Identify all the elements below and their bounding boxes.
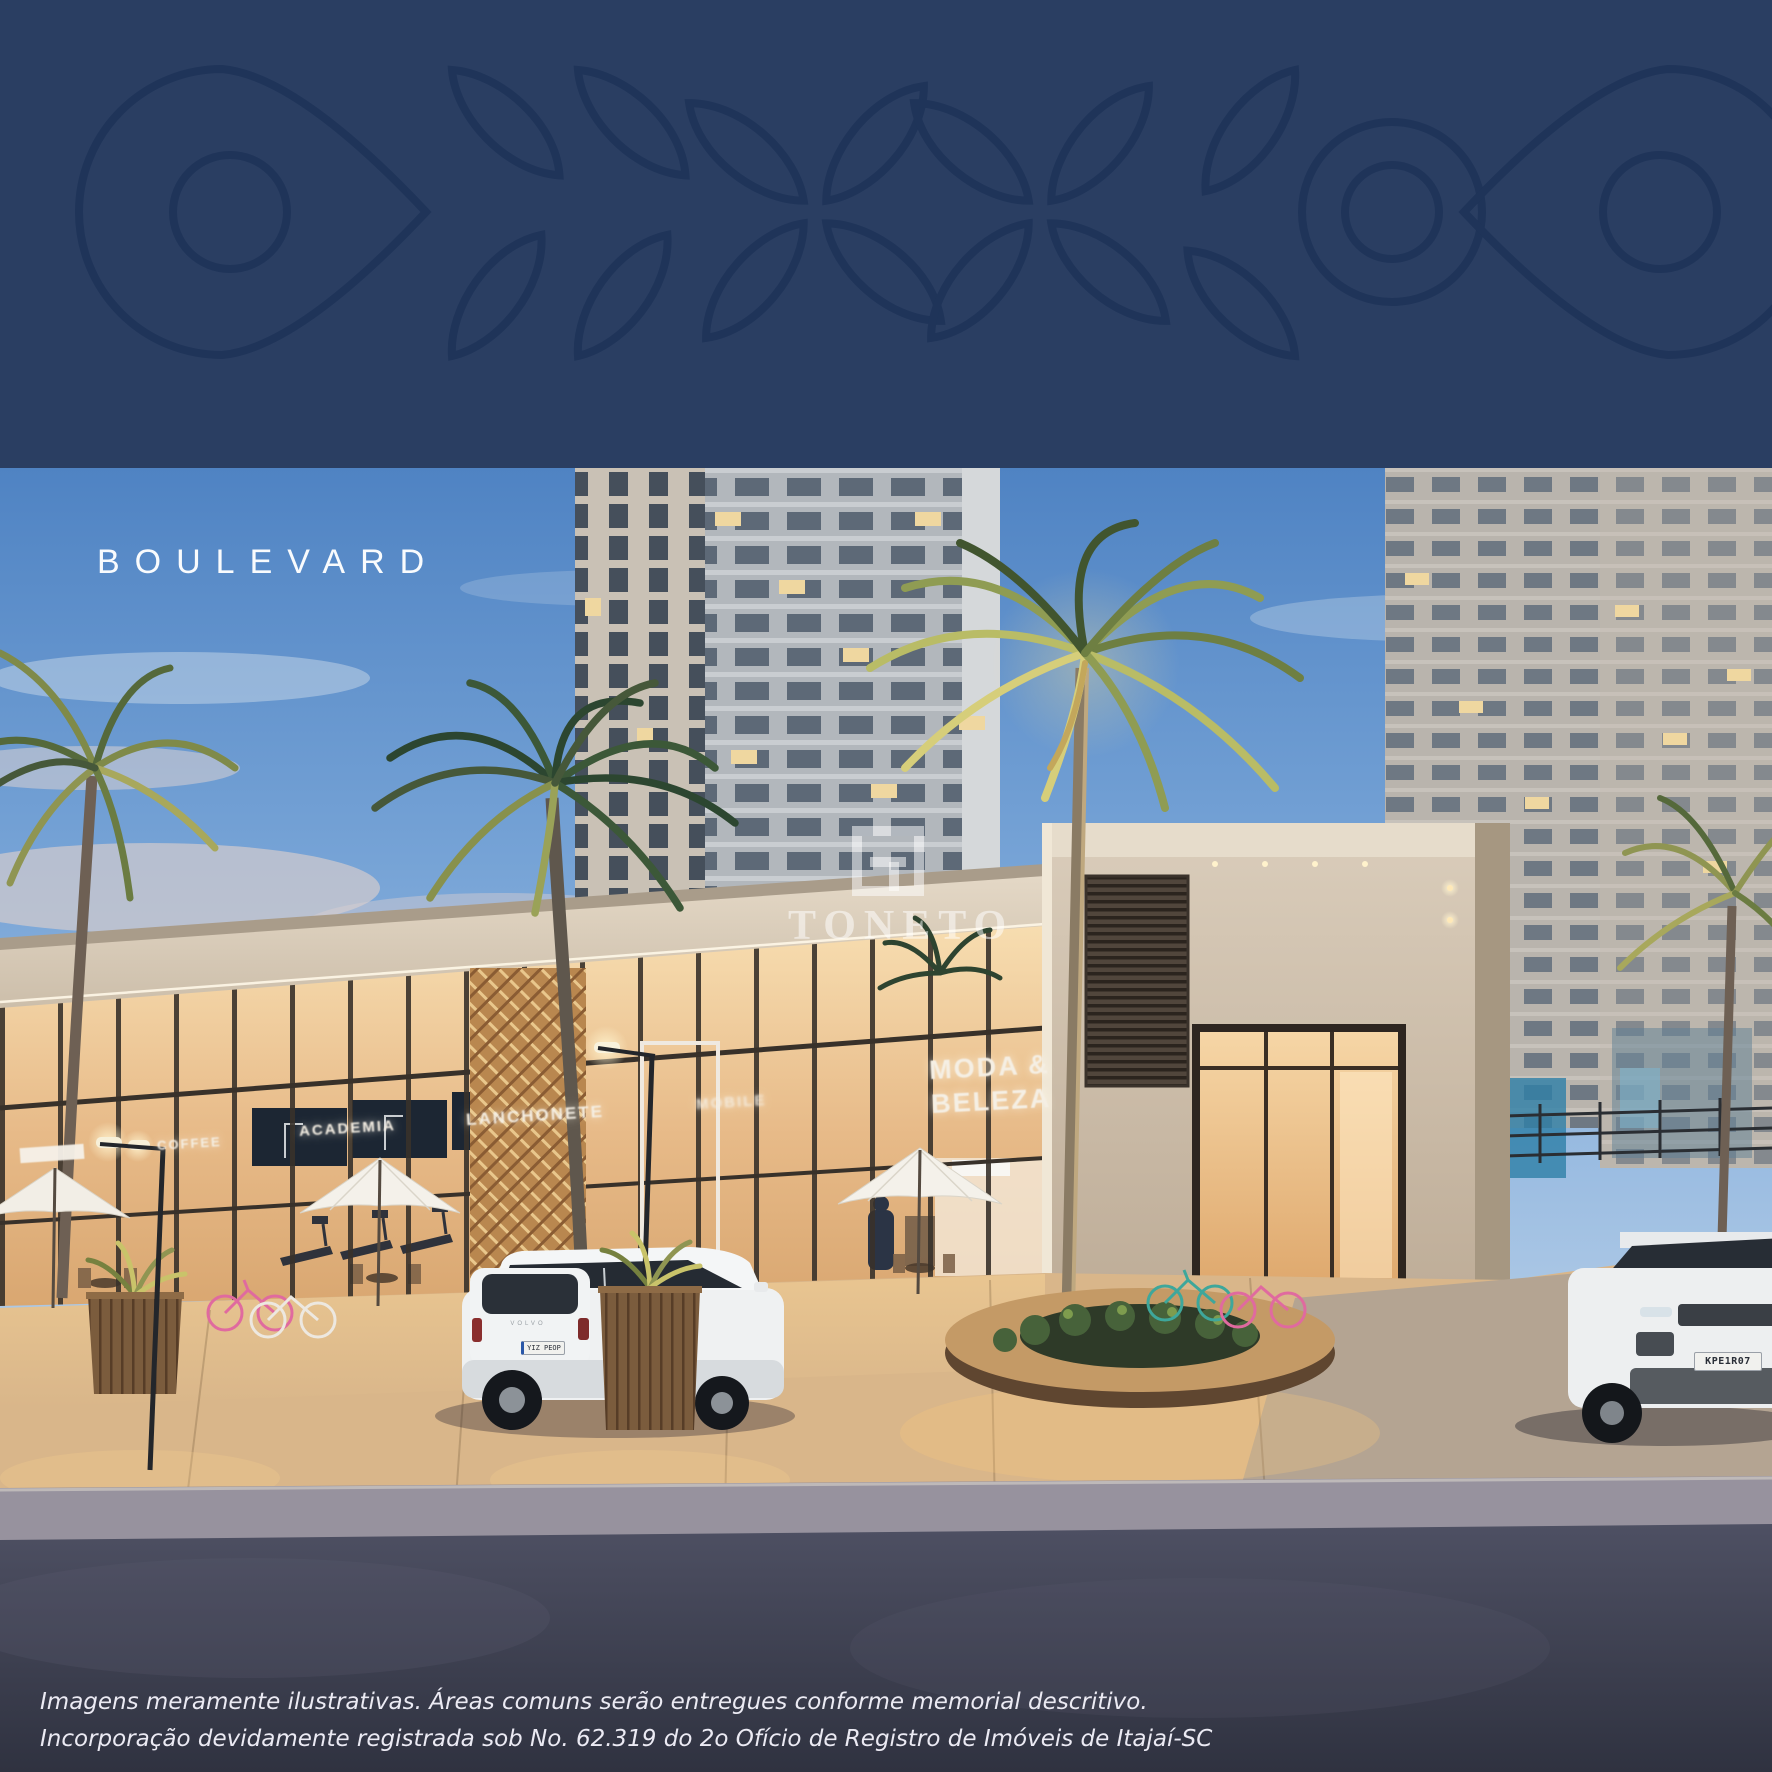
range-rover-license-plate: KPE1R07 <box>1694 1352 1762 1371</box>
volvo-badge-text: VOLVO <box>498 1321 558 1327</box>
brochure-page: BOULEVARD COFFEE ACADEMIA LANCHONETE MOB… <box>0 0 1772 1772</box>
legal-disclaimer: Imagens meramente ilustrativas. Áreas co… <box>40 1684 1212 1758</box>
circular-bench-planter <box>945 1288 1335 1408</box>
store-sign-moda-beleza: MODA & BELEZA <box>928 1047 1052 1121</box>
band-background <box>0 0 1772 468</box>
page-title: BOULEVARD <box>97 543 439 582</box>
toneto-wordmark: TONETO <box>788 902 988 950</box>
leaf-pattern-band <box>0 0 1772 468</box>
pool-glow <box>1506 1078 1566 1178</box>
entrance-block <box>1042 823 1510 1283</box>
store-sign-moda-line2: BELEZA <box>930 1081 1052 1121</box>
disclaimer-line-2: Incorporação devidamente registrada sob … <box>40 1721 1212 1758</box>
disclaimer-line-1: Imagens meramente ilustrativas. Áreas co… <box>40 1684 1212 1721</box>
brand-watermark: TONETO <box>788 824 988 950</box>
toneto-logo-icon <box>850 824 926 898</box>
street-scene-render <box>0 468 1772 1772</box>
volvo-license-plate: YIZ PEOP <box>521 1341 565 1355</box>
